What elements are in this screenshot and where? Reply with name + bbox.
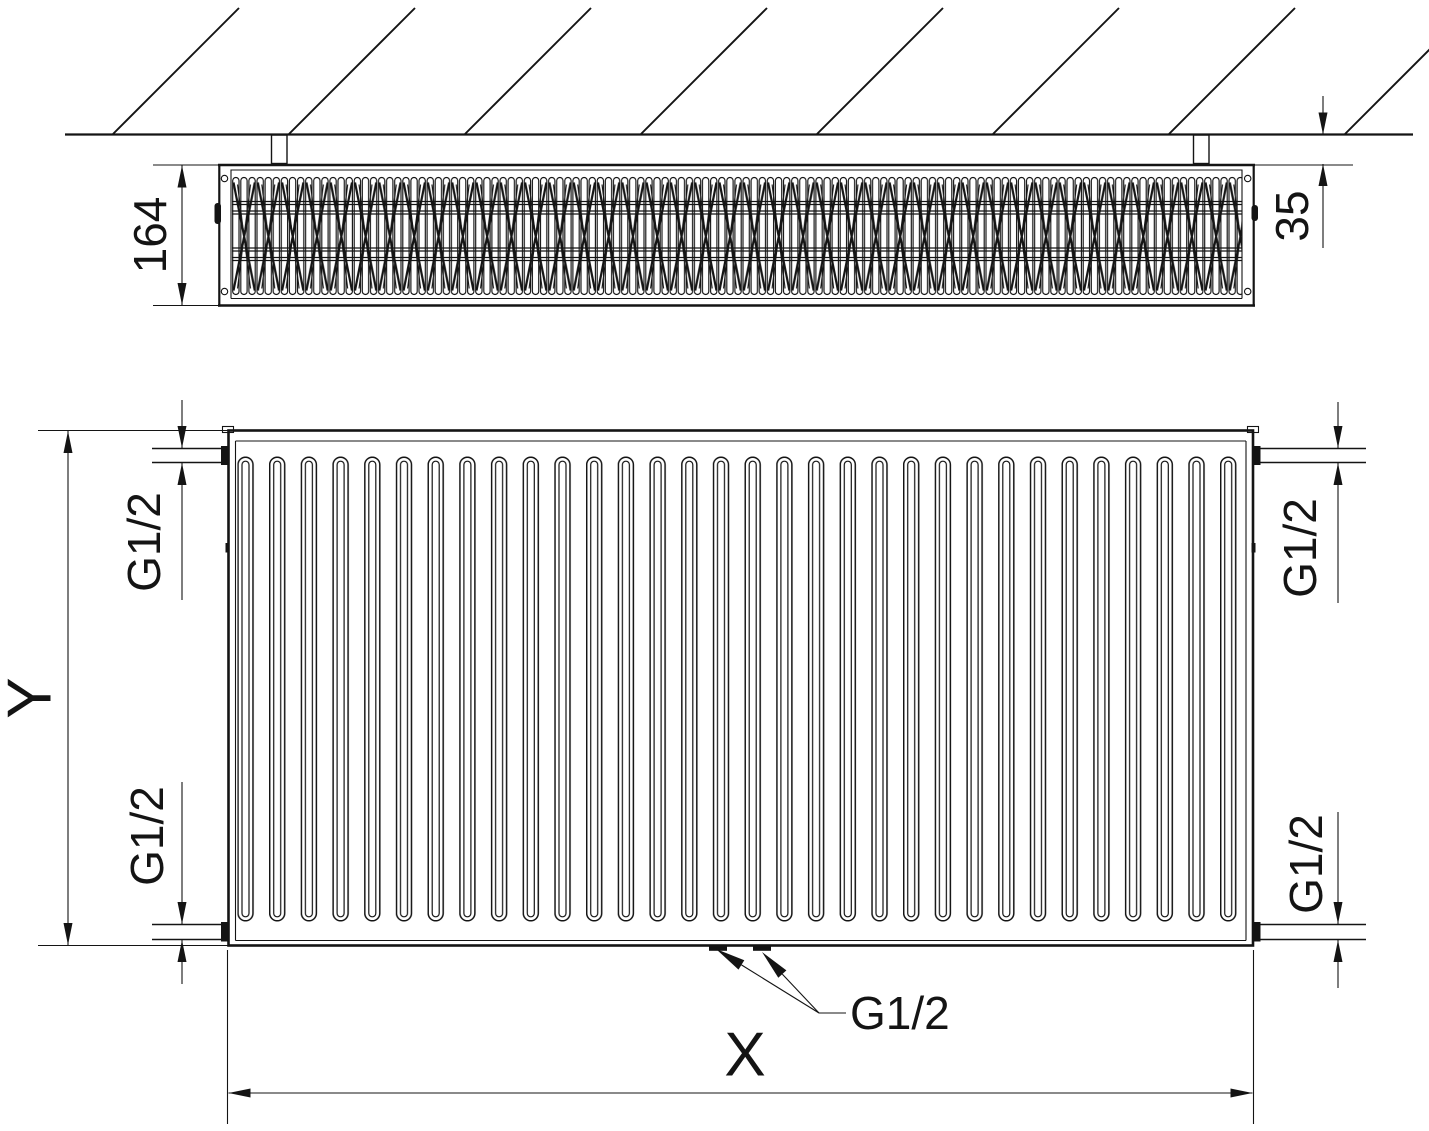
height-dim-label: Y xyxy=(0,677,65,718)
radiator-technical-drawing: 164 35 xyxy=(0,0,1429,1131)
thread-label-bottom-left: G1/2 xyxy=(121,786,173,886)
thread-label-top-right: G1/2 xyxy=(1274,498,1326,598)
arrow-down-icon xyxy=(178,902,187,924)
dimension-thread-top-right: G1/2 xyxy=(1274,402,1343,603)
arrow-up-icon xyxy=(178,940,187,962)
side-tab-left xyxy=(215,203,222,224)
wall-gap-dim-label: 35 xyxy=(1266,190,1318,241)
arrow-down-icon xyxy=(1334,426,1343,448)
arrow-up-icon xyxy=(1334,940,1343,962)
screw-hole xyxy=(1245,288,1251,294)
leader-arrow-icon xyxy=(716,949,744,970)
dimension-width-X: X xyxy=(228,950,1254,1124)
pipe-stub-bottom-left xyxy=(152,922,229,942)
pipe-stub-top-right xyxy=(1253,446,1366,465)
top-view xyxy=(153,164,1353,307)
pipe-stub-bottom-right xyxy=(1253,922,1366,942)
thread-label-bottom-center: G1/2 xyxy=(850,987,950,1039)
side-clip-left xyxy=(226,543,230,553)
arrow-down-icon xyxy=(1334,902,1343,924)
side-tab-right xyxy=(1252,205,1259,221)
wall-bracket-right xyxy=(1194,135,1210,164)
wall-bracket-left xyxy=(272,135,288,164)
pipe-stub-top-left xyxy=(152,446,229,465)
arrow-down-icon xyxy=(178,283,187,305)
screw-hole xyxy=(221,175,227,181)
wall-hatch-lines xyxy=(113,8,1429,134)
screw-hole xyxy=(221,288,227,294)
wall-section xyxy=(65,8,1429,164)
thread-label-bottom-right: G1/2 xyxy=(1280,814,1332,914)
side-clip-right xyxy=(1252,543,1256,553)
arrow-left-icon xyxy=(229,1089,251,1098)
thread-label-top-left: G1/2 xyxy=(118,492,170,592)
dimension-thread-bottom-right: G1/2 xyxy=(1280,812,1343,988)
bottom-connection-right xyxy=(753,946,771,951)
dimension-height-Y: Y xyxy=(0,431,228,946)
drawing-svg: 164 35 xyxy=(0,0,1429,1131)
arrow-up-icon xyxy=(1319,164,1328,186)
arrow-up-icon xyxy=(1334,463,1343,485)
arrow-down-icon xyxy=(64,923,73,945)
panel-grooves xyxy=(237,457,1242,922)
front-view xyxy=(152,427,1366,951)
arrow-right-icon xyxy=(1231,1089,1253,1098)
arrow-up-icon xyxy=(178,166,187,188)
dimension-depth-164: 164 xyxy=(124,165,187,306)
screw-hole xyxy=(1245,175,1251,181)
depth-dim-label: 164 xyxy=(124,197,176,274)
arrow-up-icon xyxy=(178,463,187,485)
arrow-down-icon xyxy=(1319,113,1328,135)
convector-fins xyxy=(232,177,1242,296)
dimension-thread-bottom-left: G1/2 xyxy=(121,782,187,984)
width-dim-label: X xyxy=(724,1021,765,1090)
dimension-wall-gap-35: 35 xyxy=(1266,96,1328,248)
arrow-down-icon xyxy=(178,426,187,448)
arrow-up-icon xyxy=(64,431,73,453)
